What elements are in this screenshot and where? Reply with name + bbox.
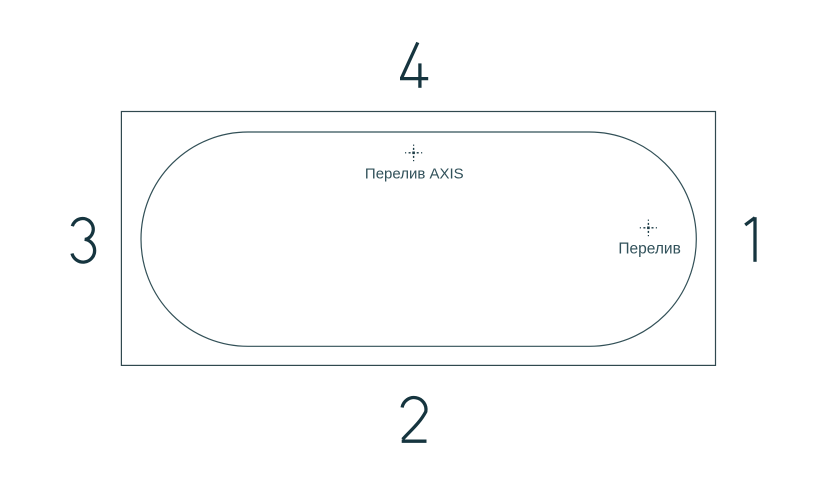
svg-text:Перелив: Перелив [618,240,680,257]
svg-text:Перелив AXIS: Перелив AXIS [365,165,464,182]
